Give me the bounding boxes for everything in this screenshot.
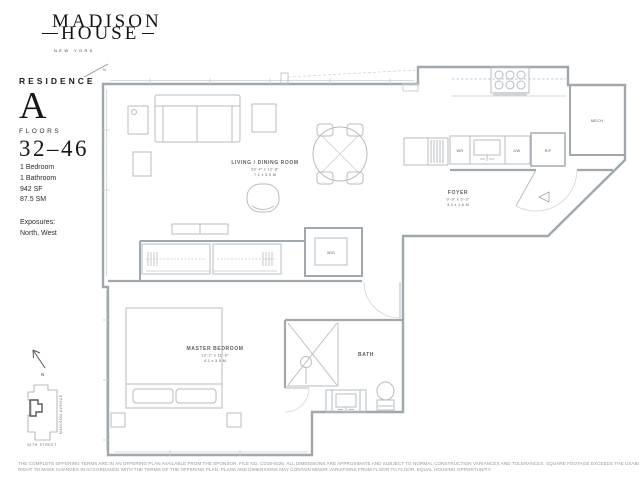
- toilet-icon: [377, 382, 394, 410]
- windows: [103, 79, 414, 457]
- soffit-line: [281, 70, 416, 84]
- apartment-perimeter: [103, 67, 625, 455]
- wall-panel: [252, 104, 276, 132]
- disclaimer-line2: RIGHT TO MAKE CHANGES IN ACCORDANCE WITH…: [18, 467, 636, 473]
- kitchen-island: [404, 138, 448, 165]
- bedroom-dim-metric: 4.1 x 3.5 M: [204, 359, 226, 363]
- foyer-dim-imperial: 9'-9" x 5'-3": [446, 198, 469, 202]
- armchair-icon: [247, 184, 279, 212]
- keyplan-street-label: 30TH STREET: [27, 443, 57, 447]
- nightstand-icon: [227, 413, 241, 427]
- wall-panel: [128, 106, 148, 134]
- wine-ref-label: WR: [457, 148, 464, 153]
- entry-door-swing: [516, 170, 577, 211]
- unit-location-highlight: [30, 400, 42, 416]
- sink-icon: [474, 140, 500, 161]
- stove-icon: [491, 67, 529, 96]
- shower-icon: [287, 322, 338, 386]
- bedroom-label: MASTER BEDROOM: [186, 346, 243, 352]
- foyer-label: FOYER: [448, 190, 468, 196]
- key-plan: N MADISON AVENUE 30TH STREET: [27, 350, 63, 447]
- living-label: LIVING / DINING ROOM: [231, 160, 298, 166]
- kitchen: [403, 67, 566, 166]
- entry-marker-icon: [539, 192, 549, 202]
- bathroom: [285, 320, 403, 412]
- floor-plan-page: MADISON HOUSE NEW YORK RESIDENCE A FLOOR…: [0, 0, 639, 494]
- keyplan-north-label: N: [41, 372, 44, 377]
- compass-west-label: W: [88, 79, 92, 83]
- nightstand-icon: [111, 413, 125, 427]
- bedroom-dim-imperial: 13'-2" x 11'-6": [201, 354, 229, 358]
- washer-dryer-label: W/D: [327, 250, 335, 255]
- living-dim-imperial: 23'-4" x 12'-8": [251, 168, 279, 172]
- dishwasher-label: DW: [514, 148, 521, 153]
- legal-disclaimer: THE COMPLETE OFFERING TERMS ARE IN AN OF…: [18, 461, 636, 474]
- vanity-sink-icon: [326, 390, 366, 412]
- compass-north-label: N: [103, 68, 106, 72]
- keyplan-avenue-label: MADISON AVENUE: [59, 394, 63, 434]
- north-arrow-icon: [33, 350, 45, 368]
- master-bedroom: [111, 308, 241, 427]
- bedroom-door-swing: [364, 282, 400, 318]
- foyer-dim-metric: 3.0 x 1.6 M: [447, 203, 469, 207]
- dining-table-icon: [313, 124, 367, 184]
- bed-icon: [126, 308, 222, 408]
- plan-compass-icon: W N: [84, 64, 108, 83]
- wall-panel: [133, 152, 151, 176]
- bath-door-swing: [285, 388, 309, 412]
- floor-plan-drawing: W N: [0, 0, 639, 494]
- media-console-icon: [172, 224, 228, 234]
- living-dim-metric: 7.1 x 3.9 M: [254, 173, 276, 177]
- refrigerator-label: R/F: [545, 148, 552, 153]
- mech-label: MECH: [591, 118, 603, 123]
- sofa-icon: [155, 95, 240, 142]
- bath-label: BATH: [358, 352, 374, 358]
